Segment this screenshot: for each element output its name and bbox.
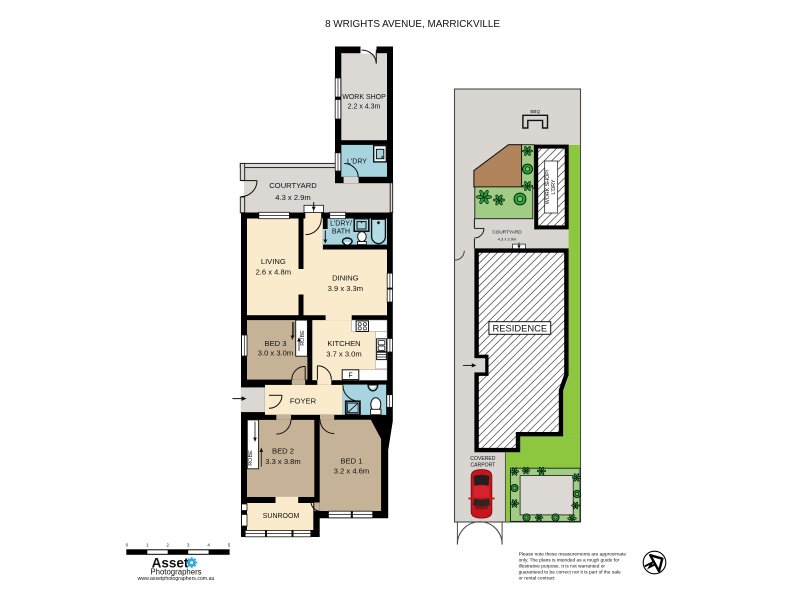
svg-text:BED 2: BED 2: [272, 447, 294, 456]
svg-text:or rental contract: or rental contract: [519, 576, 556, 582]
svg-text:ROBE: ROBE: [248, 450, 254, 466]
svg-text:L'DRY: L'DRY: [551, 179, 557, 195]
svg-text:L'DRY/: L'DRY/: [330, 221, 352, 228]
svg-text:3.3 x 3.8m: 3.3 x 3.8m: [265, 457, 300, 466]
svg-text:Please note these measurements: Please note these measurements are appro…: [519, 552, 627, 558]
svg-text:BBQ: BBQ: [530, 109, 540, 114]
svg-text:8 WRIGHTS AVENUE, MARRICKVILLE: 8 WRIGHTS AVENUE, MARRICKVILLE: [325, 19, 500, 30]
svg-text:DINING: DINING: [332, 274, 359, 283]
svg-text:BED 1: BED 1: [341, 457, 363, 466]
svg-text:Photographers: Photographers: [150, 568, 201, 577]
svg-text:guaranteed to be correct nor i: guaranteed to be correct nor it is part …: [519, 570, 621, 576]
svg-text:SUNROOM: SUNROOM: [263, 513, 300, 520]
svg-text:www.assetphotographers.com.au: www.assetphotographers.com.au: [138, 576, 215, 582]
svg-text:COVERED: COVERED: [470, 456, 496, 462]
svg-text:CARPORT: CARPORT: [470, 463, 495, 469]
svg-text:4.3 x 2.9m: 4.3 x 2.9m: [275, 193, 310, 202]
svg-text:COURTYARD: COURTYARD: [269, 181, 317, 190]
svg-text:only. The plans is intended as: only. The plans is intended as a rough g…: [519, 558, 620, 564]
svg-text:RESIDENCE: RESIDENCE: [492, 322, 547, 333]
svg-text:ROBE: ROBE: [300, 330, 306, 346]
svg-text:4.3 x 2.9m: 4.3 x 2.9m: [498, 237, 517, 242]
svg-text:LIVING: LIVING: [261, 257, 286, 266]
svg-text:2.2 x 4.3m: 2.2 x 4.3m: [348, 104, 381, 111]
svg-text:BED 3: BED 3: [265, 339, 287, 348]
svg-text:COURTYARD: COURTYARD: [492, 230, 522, 235]
svg-text:2.6 x 4.8m: 2.6 x 4.8m: [256, 267, 291, 276]
svg-text:KITCHEN: KITCHEN: [327, 339, 360, 348]
svg-text:BATH: BATH: [332, 229, 350, 236]
svg-text:3.7 x 3.0m: 3.7 x 3.0m: [326, 349, 361, 358]
svg-text:L'DRY: L'DRY: [347, 159, 367, 166]
svg-text:FOYER: FOYER: [290, 396, 317, 405]
svg-text:3.9 x 3.3m: 3.9 x 3.3m: [328, 284, 363, 293]
svg-text:3.0 x 3.0m: 3.0 x 3.0m: [258, 349, 293, 358]
svg-text:WORK SHOP: WORK SHOP: [342, 94, 386, 101]
svg-text:F: F: [348, 373, 352, 380]
svg-text:illustrative purpose. It is no: illustrative purpose. It is not warrante…: [519, 564, 606, 570]
svg-text:3.2 x 4.6m: 3.2 x 4.6m: [334, 467, 369, 476]
